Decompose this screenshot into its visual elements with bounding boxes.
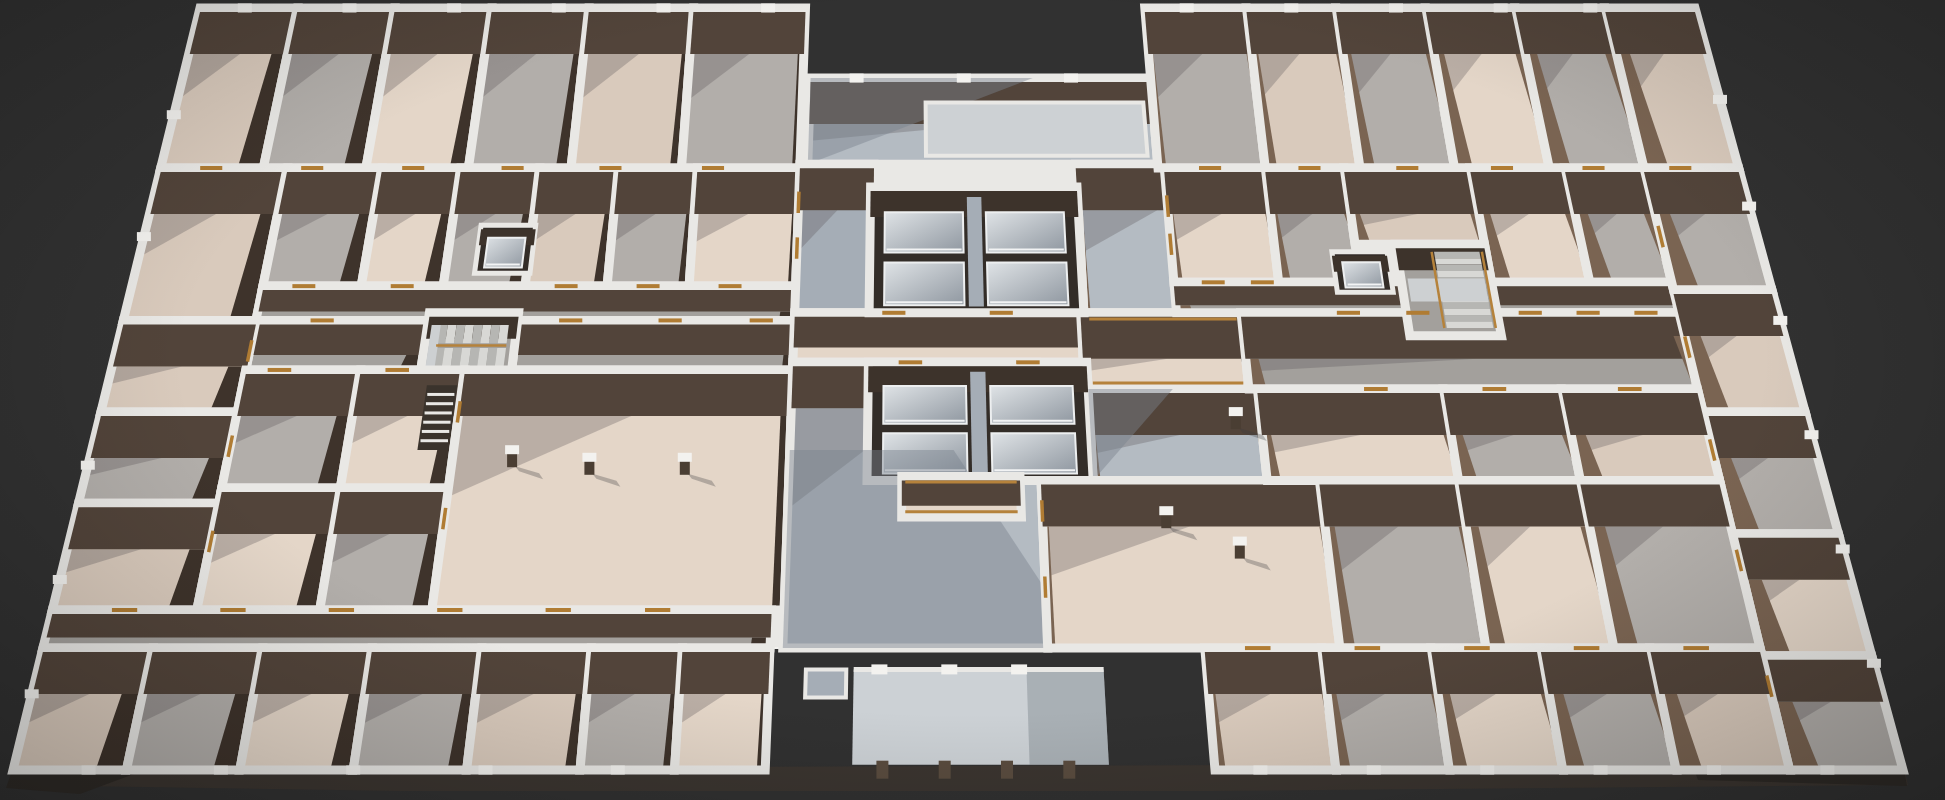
column-cap <box>1159 506 1173 515</box>
wall-pilaster <box>1583 4 1597 13</box>
canopy-column <box>876 761 888 779</box>
wall-pilaster <box>1820 766 1834 775</box>
core-divider <box>970 372 988 475</box>
column-cap <box>505 445 519 454</box>
stair-step <box>1443 303 1490 309</box>
wall-face-north <box>374 172 460 214</box>
canopy-shade <box>1027 669 1109 764</box>
wall-pilaster <box>1064 74 1078 83</box>
wall-pilaster <box>137 232 151 241</box>
column-face <box>507 452 517 467</box>
wall-face-north <box>150 172 287 214</box>
wall-face-north <box>1041 484 1325 526</box>
wall-face-north <box>1319 484 1465 526</box>
wall-pilaster <box>1773 316 1787 325</box>
wall-pilaster <box>1367 766 1381 775</box>
wall-face-north <box>254 652 371 694</box>
elevator-car <box>884 263 964 306</box>
wall-face-north <box>1580 484 1729 526</box>
canopy-column <box>939 761 951 779</box>
courtyard-skylight <box>926 103 1148 156</box>
column-face <box>680 460 690 475</box>
elevator-car <box>991 433 1077 473</box>
wall-pilaster <box>1180 4 1194 13</box>
wall-pilaster <box>81 461 95 470</box>
wall-face-north <box>454 172 539 214</box>
wall-face-north <box>1081 317 1246 359</box>
wall-face-north <box>1444 393 1571 435</box>
wall-face-north <box>680 652 770 694</box>
wall-pilaster <box>1805 430 1819 439</box>
canopy-pier <box>941 664 957 674</box>
wall-pilaster <box>1836 545 1850 554</box>
door-lintel <box>1045 576 1046 597</box>
wall-face-north <box>587 652 682 694</box>
door-lintel <box>798 192 799 213</box>
wall-pilaster <box>214 766 228 775</box>
wall-pilaster <box>1253 766 1267 775</box>
wall-pilaster <box>611 766 625 775</box>
wall-face-north <box>694 172 800 214</box>
column-cap <box>1229 407 1243 416</box>
canopy-column <box>1063 761 1075 779</box>
wall-pilaster <box>1867 659 1881 668</box>
wall-face-north <box>1459 484 1589 526</box>
wall-pilaster <box>346 766 360 775</box>
elevator-car <box>990 386 1074 424</box>
wall-face-north <box>1145 12 1252 54</box>
wall-face-north <box>113 324 256 366</box>
elevator-car <box>986 212 1066 252</box>
entrance-pad <box>805 669 846 697</box>
wall-face-north <box>486 12 589 54</box>
wall-pilaster <box>1284 4 1298 13</box>
wall-face-north <box>1516 12 1616 54</box>
wall-pilaster <box>1594 766 1608 775</box>
wall-face-north <box>1164 172 1270 214</box>
wall-pilaster <box>957 74 971 83</box>
wall-face-north <box>794 317 1083 348</box>
wall-pilaster <box>1707 766 1721 775</box>
wall-face-north <box>190 12 298 54</box>
render-viewport-background <box>0 0 1945 800</box>
column-face <box>584 460 594 475</box>
wall-pilaster <box>552 4 566 13</box>
wall-face-north <box>1541 652 1660 694</box>
wall-pilaster <box>447 4 461 13</box>
wall-face-north <box>902 481 1021 506</box>
elevator-car <box>883 386 966 424</box>
wall-face-north <box>213 492 340 534</box>
wall-face-north <box>91 416 238 458</box>
wall-face-north <box>259 290 796 311</box>
wall-pilaster <box>761 4 775 13</box>
wall-face-north <box>1344 172 1478 214</box>
wall-face-north <box>1733 538 1851 580</box>
wall-face-north <box>1674 294 1784 336</box>
column-cap <box>1233 537 1247 546</box>
wall-face-north <box>288 12 394 54</box>
wall-face-north <box>1265 172 1350 214</box>
wall-face-north <box>1431 652 1548 694</box>
wall-pilaster <box>850 74 864 83</box>
wall-face-north <box>1247 12 1343 54</box>
door-lintel <box>1167 195 1169 216</box>
stair-step <box>1435 258 1482 264</box>
wall-pilaster <box>1742 202 1756 211</box>
wall-pilaster <box>25 689 39 698</box>
wall-pilaster <box>479 766 493 775</box>
column-face <box>1235 544 1245 559</box>
wall-face-north <box>798 168 874 210</box>
column-face <box>1161 513 1171 528</box>
canopy-pier <box>871 664 887 674</box>
wall-face-north <box>476 652 591 694</box>
stair-step <box>1444 309 1491 315</box>
wall-pilaster <box>82 766 96 775</box>
wall-face-north <box>1426 12 1525 54</box>
canopy-pier <box>1011 664 1027 674</box>
column-face <box>1231 414 1241 429</box>
wall-face-north <box>1651 652 1771 694</box>
wall-face-north <box>1605 12 1706 54</box>
wall-face-north <box>365 652 481 694</box>
wall-pilaster <box>657 4 671 13</box>
wall-face-north <box>333 492 448 534</box>
wall-face-north <box>144 652 263 694</box>
elevator-car <box>987 263 1069 306</box>
wall-pilaster <box>1389 4 1403 13</box>
wall-face-north <box>1205 652 1327 694</box>
wall-face-north <box>250 324 429 355</box>
stair-step <box>1436 265 1483 271</box>
wall-face-north <box>68 507 219 549</box>
wall-face-north <box>1322 652 1438 694</box>
floorplan-3d-viewport[interactable] <box>0 0 1945 800</box>
wall-face-north <box>278 172 381 214</box>
wall-face-north <box>33 652 153 694</box>
column-cap <box>582 453 596 462</box>
wall-face-north <box>614 172 697 214</box>
column-cap <box>678 453 692 462</box>
core-divider <box>967 197 984 306</box>
wall-pilaster <box>1713 95 1727 104</box>
door-lintel <box>797 237 798 258</box>
wall-face-north <box>1644 172 1750 214</box>
wall-face-north <box>237 374 360 416</box>
wall-face-north <box>1470 172 1574 214</box>
wall-face-north <box>47 614 772 638</box>
elevator-car <box>885 212 964 252</box>
stair-step <box>1437 271 1484 277</box>
wall-face-north <box>1703 416 1817 458</box>
stair-step <box>1434 252 1481 258</box>
door-lintel <box>1042 500 1043 521</box>
wall-face-north <box>1562 393 1708 435</box>
stair-landing <box>1408 279 1489 302</box>
wall-face-north <box>1336 12 1433 54</box>
wall-face-north <box>690 12 805 54</box>
door-lintel <box>1170 234 1172 255</box>
wall-pilaster <box>1480 766 1494 775</box>
wall-face-north <box>1565 172 1654 214</box>
stair-step <box>1446 322 1494 328</box>
wall-face-north <box>387 12 492 54</box>
wall-pilaster <box>238 4 252 13</box>
wall-pilaster <box>343 4 357 13</box>
stair-step <box>1445 315 1493 321</box>
wall-face-north <box>534 172 618 214</box>
wall-pilaster <box>53 575 67 584</box>
wall-pilaster <box>1494 4 1508 13</box>
wall-pilaster <box>167 110 181 119</box>
wall-face-north <box>1762 660 1883 702</box>
wall-face-north <box>459 374 793 416</box>
wall-face-north <box>584 12 693 54</box>
wall-face-north <box>1257 393 1450 435</box>
wall-face-north <box>514 324 795 355</box>
elevator-car <box>484 238 525 268</box>
canopy-column <box>1001 761 1013 779</box>
